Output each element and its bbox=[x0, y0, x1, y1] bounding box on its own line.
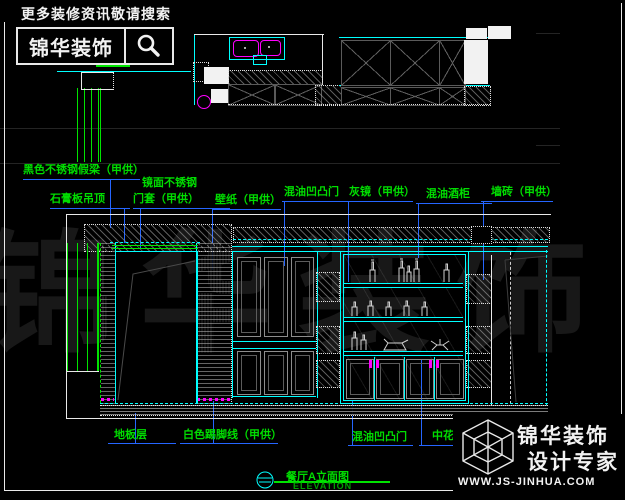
plan-fixture bbox=[204, 67, 229, 84]
cube-logo-icon bbox=[461, 418, 515, 476]
panel-door bbox=[264, 351, 288, 395]
brand-footer: 锦华装饰 设计专家 WWW.JS-JINHUA.COM bbox=[453, 414, 625, 500]
doorframe-mirror-steel bbox=[112, 248, 198, 249]
tile-strip bbox=[316, 272, 340, 302]
plan-fixture-circle bbox=[197, 95, 211, 109]
ceiling-notch bbox=[471, 226, 492, 244]
wall-crease-lines bbox=[495, 252, 550, 404]
door-handle bbox=[369, 360, 372, 368]
plan-line bbox=[96, 65, 130, 67]
panel-door bbox=[291, 257, 314, 337]
annotation-white-skirting: 白色踢脚线（甲供） bbox=[183, 429, 282, 442]
plan-cabinet-x bbox=[439, 40, 466, 86]
bottles-artwork bbox=[344, 253, 463, 353]
door-handle bbox=[436, 360, 439, 368]
plan-hatch-band bbox=[228, 70, 323, 85]
elevation-border-top bbox=[66, 214, 551, 215]
leader-underline bbox=[348, 445, 413, 446]
column-lines bbox=[67, 243, 99, 372]
plan-wall-box bbox=[81, 72, 114, 90]
plan-cabinet-x bbox=[228, 84, 276, 106]
plan-fixture bbox=[488, 26, 511, 39]
door-handle bbox=[376, 360, 379, 368]
panel-divider bbox=[232, 341, 316, 349]
tile-strip bbox=[316, 326, 340, 354]
tile-strip bbox=[466, 274, 492, 304]
sink-drain bbox=[268, 46, 270, 48]
magnifier-icon bbox=[136, 33, 162, 59]
cabinet-base-divider bbox=[434, 357, 435, 401]
wall-edge bbox=[491, 255, 492, 405]
elevation-mark-icon bbox=[255, 470, 275, 490]
cabinet-base-door bbox=[436, 359, 464, 399]
skirting-mark bbox=[197, 398, 230, 401]
annotation-floor-layer: 地板层 bbox=[114, 429, 147, 442]
tile-strip bbox=[466, 360, 492, 388]
panel-door bbox=[291, 351, 314, 395]
brand-tagline: 设计专家 bbox=[527, 446, 619, 476]
tile-strip bbox=[316, 360, 340, 388]
plan-hatch-square bbox=[315, 85, 342, 106]
drawing-subtitle: ELEVATION bbox=[293, 481, 352, 491]
plan-fixture bbox=[466, 28, 487, 39]
sink-faucet bbox=[253, 55, 267, 65]
plan-hatch-square bbox=[464, 86, 491, 106]
plan-fixture bbox=[464, 40, 488, 84]
wall-pier bbox=[196, 243, 232, 404]
leader-underline bbox=[23, 179, 140, 180]
door-opening bbox=[115, 251, 198, 404]
doorframe-line bbox=[110, 242, 200, 243]
tile-strip bbox=[466, 326, 492, 354]
plan-fixture bbox=[211, 89, 229, 103]
column-base-line bbox=[66, 371, 99, 372]
leader-underline bbox=[180, 443, 278, 444]
wall-pier bbox=[101, 243, 116, 404]
brand-website: WWW.JS-JINHUA.COM bbox=[458, 476, 595, 488]
doorframe-mirror-steel bbox=[112, 245, 198, 246]
cabinet-base-divider bbox=[404, 357, 405, 401]
door-handle bbox=[429, 360, 432, 368]
skirting-mark bbox=[101, 398, 114, 401]
wall-end-line bbox=[546, 250, 547, 406]
panel-base-line bbox=[232, 396, 316, 397]
plan-line bbox=[57, 71, 191, 72]
counter-edge bbox=[194, 34, 324, 35]
leader-underline bbox=[108, 443, 176, 444]
cad-drawing-page: 锦华装饰 bbox=[0, 0, 625, 500]
plan-column-section bbox=[77, 88, 101, 162]
cabinet-base-divider bbox=[374, 357, 375, 401]
grid-line bbox=[536, 145, 560, 146]
brand-logo-box: 锦华装饰 bbox=[16, 27, 174, 65]
ceiling-line bbox=[233, 239, 548, 240]
ceiling-hatch bbox=[233, 227, 550, 243]
search-icon-cell bbox=[126, 29, 172, 63]
grid-line bbox=[536, 33, 560, 34]
plan-cabinet-x bbox=[341, 40, 391, 86]
annotation-black-steel-beam: 黑色不锈钢假梁（甲供） bbox=[23, 164, 144, 177]
search-hint-text: 更多装修资讯敬请搜索 bbox=[21, 4, 171, 24]
cabinet-base-door bbox=[376, 359, 404, 399]
sink-drain bbox=[244, 47, 246, 49]
annotation-paint-door-bottom: 混油凹凸门 bbox=[352, 431, 407, 444]
sink-basin bbox=[260, 40, 281, 56]
panel-door bbox=[264, 257, 288, 337]
door-swing-line bbox=[116, 252, 197, 404]
floor-line bbox=[100, 403, 548, 404]
plan-cabinet-x bbox=[390, 40, 440, 86]
panel-door bbox=[237, 257, 261, 337]
brand-logo-text: 锦华装饰 bbox=[18, 29, 126, 63]
plan-line bbox=[228, 104, 490, 105]
panel-door bbox=[237, 351, 261, 395]
